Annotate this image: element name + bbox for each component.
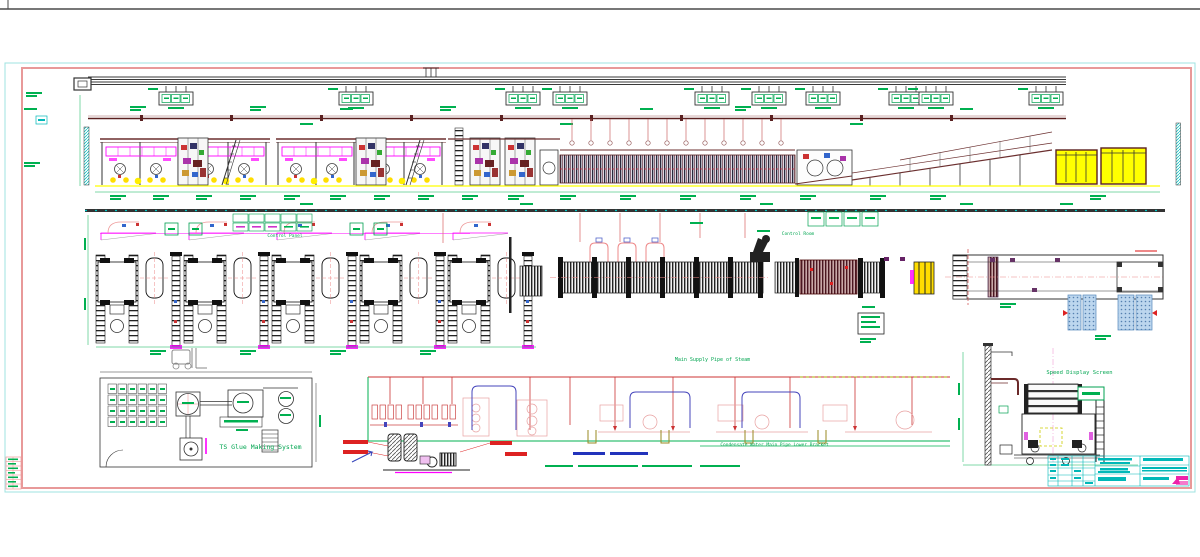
- speed-screen-label: Speed Display Screen: [1042, 370, 1117, 376]
- elevation-margin-labels: [24, 92, 89, 186]
- steam-main-label: Main Supply Pipe of Steam: [660, 358, 765, 364]
- cad-drawing-sheet: TS Glue Making System Speed Display Scre…: [0, 0, 1200, 557]
- speed-display-section: [958, 343, 1138, 465]
- control-room-label: Control Room: [768, 233, 828, 238]
- blue-loops: [472, 386, 800, 430]
- speed-display-box: [1078, 387, 1104, 400]
- laminator-block: [800, 260, 857, 294]
- elevation-dimensions: [95, 186, 1160, 205]
- glue-room: [100, 372, 321, 467]
- steam-diagram: [343, 377, 950, 473]
- transfer-section: [448, 128, 560, 185]
- right-hatched-post: [1176, 123, 1181, 185]
- main-conveyor: [550, 257, 770, 298]
- control-panel-label: Control Panel: [250, 235, 320, 240]
- plan-annotation-box: [858, 306, 884, 343]
- condensate-label: Condensate Water Main Pipe Lower Bracket: [712, 444, 837, 449]
- ladder: [1096, 400, 1104, 462]
- glue-cell-grid: [108, 384, 167, 427]
- forklift: [172, 348, 207, 369]
- dryer-section: [560, 119, 795, 183]
- yellow-cabins: [1056, 148, 1146, 184]
- pump-batteries: [370, 405, 458, 425]
- drawing-canvas: [0, 0, 1200, 557]
- control-room-grid: [808, 212, 878, 226]
- robot-arm: [750, 235, 770, 262]
- condensate-station: [343, 434, 527, 473]
- plan-view: [84, 209, 1165, 369]
- revision-strip: [6, 457, 21, 489]
- plan-divider-post: [509, 237, 512, 313]
- plan-drop-pipes: [443, 213, 745, 262]
- heat-exchangers: [463, 398, 932, 436]
- winder-block: [910, 262, 934, 294]
- glue-system-label: TS Glue Making System: [213, 444, 308, 451]
- pallets: [1063, 295, 1157, 330]
- elevation-view: [24, 68, 1181, 205]
- title-block-logo: [1172, 476, 1188, 485]
- control-panel-grid: [233, 214, 312, 231]
